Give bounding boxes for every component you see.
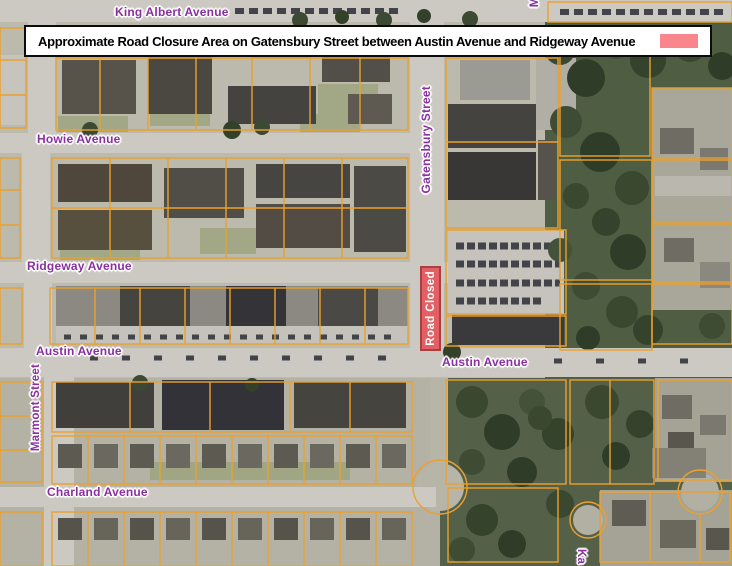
street-label-ridgeway-avenue: Ridgeway Avenue	[27, 259, 132, 273]
street-label-austin-avenue-west: Austin Avenue	[36, 344, 122, 358]
street-label-marmont-street: Marmont Street	[30, 364, 43, 451]
closure-color-swatch	[660, 34, 698, 48]
road-closed-label: Road Closed	[425, 271, 437, 346]
road-closed-marker: Road Closed	[420, 266, 441, 351]
street-label-gatensbury-street: Gatensbury Street	[419, 86, 433, 193]
street-label-howie-avenue: Howie Avenue	[37, 132, 121, 146]
street-label-partial-top: M	[527, 0, 541, 7]
aerial-basemap	[0, 0, 732, 566]
street-label-king-albert-avenue: King Albert Avenue	[115, 5, 229, 19]
title-banner: Approximate Road Closure Area on Gatensb…	[24, 25, 712, 57]
street-label-partial-bottom: Ka	[574, 549, 587, 564]
street-label-austin-avenue-east: Austin Avenue	[442, 355, 528, 369]
road-closure-map: King Albert Avenue Howie Avenue Gatensbu…	[0, 0, 732, 566]
street-label-charland-avenue: Charland Avenue	[47, 485, 148, 499]
banner-text: Approximate Road Closure Area on Gatensb…	[38, 34, 635, 49]
